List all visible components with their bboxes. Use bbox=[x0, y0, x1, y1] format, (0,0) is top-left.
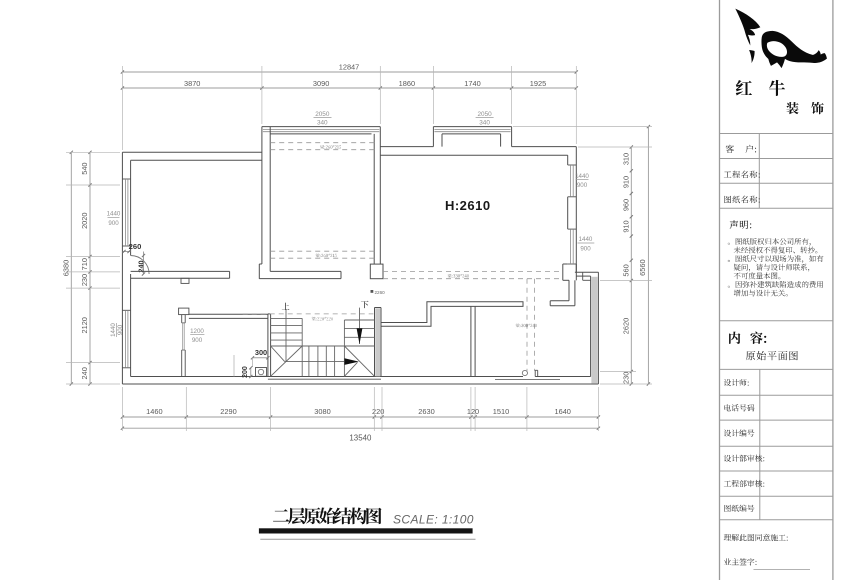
svg-text:2620: 2620 bbox=[621, 318, 630, 334]
svg-text:H:2610: H:2610 bbox=[445, 198, 491, 213]
svg-text:2260: 2260 bbox=[375, 290, 386, 295]
svg-text:230: 230 bbox=[621, 372, 630, 384]
svg-text:200: 200 bbox=[242, 366, 249, 378]
svg-text:300: 300 bbox=[255, 348, 267, 357]
svg-text:1440: 1440 bbox=[575, 173, 589, 180]
svg-text:230: 230 bbox=[80, 274, 89, 286]
svg-text:13540: 13540 bbox=[349, 434, 372, 443]
svg-text:6380: 6380 bbox=[61, 260, 70, 276]
svg-text:1440: 1440 bbox=[107, 211, 121, 218]
svg-text:900: 900 bbox=[192, 337, 203, 344]
svg-text:540: 540 bbox=[80, 162, 89, 174]
svg-text:1640: 1640 bbox=[554, 407, 570, 416]
svg-text:1740: 1740 bbox=[464, 79, 480, 88]
svg-text:1200: 1200 bbox=[190, 328, 204, 335]
svg-text:240: 240 bbox=[137, 260, 146, 272]
svg-text:2050: 2050 bbox=[477, 111, 492, 118]
svg-text:1925: 1925 bbox=[530, 79, 546, 88]
svg-text:1860: 1860 bbox=[399, 79, 415, 88]
svg-text:3870: 3870 bbox=[184, 79, 200, 88]
svg-text:1460: 1460 bbox=[146, 407, 162, 416]
svg-text:240: 240 bbox=[80, 367, 89, 379]
svg-text:3090: 3090 bbox=[313, 79, 329, 88]
svg-text:12847: 12847 bbox=[339, 63, 360, 72]
svg-text:SCALE: 1:100: SCALE: 1:100 bbox=[393, 513, 474, 527]
svg-text:910: 910 bbox=[621, 220, 630, 232]
svg-text:900: 900 bbox=[108, 220, 119, 227]
svg-text:2630: 2630 bbox=[418, 407, 434, 416]
svg-text:340: 340 bbox=[317, 119, 328, 126]
svg-text:120: 120 bbox=[467, 407, 479, 416]
svg-text:3080: 3080 bbox=[314, 407, 330, 416]
svg-text:310: 310 bbox=[621, 153, 630, 165]
svg-text:900: 900 bbox=[577, 182, 588, 189]
svg-text:1440: 1440 bbox=[579, 236, 593, 243]
svg-text:910: 910 bbox=[621, 176, 630, 188]
svg-text:560: 560 bbox=[621, 264, 630, 276]
svg-text:2020: 2020 bbox=[80, 212, 89, 228]
svg-text:260: 260 bbox=[129, 242, 142, 251]
svg-text:1440: 1440 bbox=[110, 323, 117, 337]
svg-text:340: 340 bbox=[479, 119, 490, 126]
svg-text:900: 900 bbox=[117, 324, 124, 335]
svg-text:1510: 1510 bbox=[493, 407, 509, 416]
svg-text:220: 220 bbox=[372, 407, 384, 416]
svg-text:710: 710 bbox=[80, 258, 89, 270]
svg-text:960: 960 bbox=[621, 199, 630, 211]
svg-text:900: 900 bbox=[580, 245, 591, 252]
svg-text:2050: 2050 bbox=[315, 111, 330, 118]
svg-text:2290: 2290 bbox=[220, 407, 236, 416]
svg-text:6560: 6560 bbox=[638, 259, 647, 275]
svg-text:2120: 2120 bbox=[80, 317, 89, 333]
